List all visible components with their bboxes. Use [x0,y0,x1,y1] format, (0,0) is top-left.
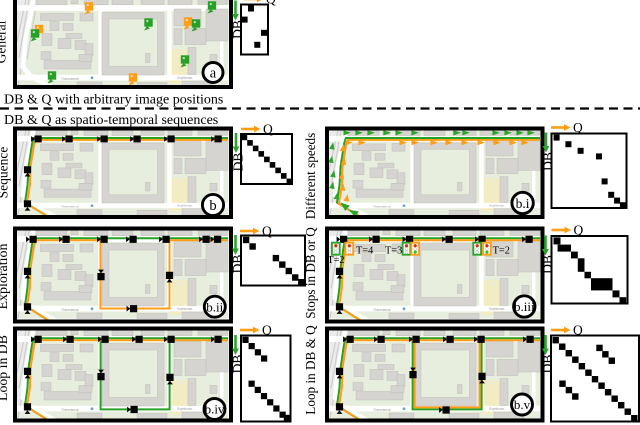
svg-text:DB: DB [540,255,555,274]
svg-text:Sequence: Sequence [0,147,11,199]
svg-text:Q: Q [262,224,272,239]
svg-text:T=2: T=2 [493,246,510,257]
svg-text:Exploration: Exploration [0,243,11,309]
svg-text:Different speeds: Different speeds [303,133,318,220]
svg-text:T=4: T=4 [356,246,373,257]
svg-text:Loop in DB: Loop in DB [0,335,10,401]
svg-text:b.i: b.i [516,196,530,211]
svg-text:General: General [0,20,9,63]
svg-text:DB & Q as spatio-temporal sequ: DB & Q as spatio-temporal sequences [4,113,218,128]
svg-text:DB: DB [230,255,245,274]
svg-text:DB: DB [541,152,556,171]
svg-text:DB: DB [540,355,555,374]
svg-text:Q: Q [573,323,583,338]
svg-text:Q: Q [262,323,272,338]
svg-text:b.iv: b.iv [205,402,225,417]
svg-text:a: a [210,66,217,82]
svg-text:b.ii: b.ii [206,299,223,314]
svg-text:DB: DB [231,153,246,172]
svg-text:DB & Q with arbitrary image po: DB & Q with arbitrary image positions [4,93,223,108]
svg-text:Stops in DB or Q: Stops in DB or Q [303,227,318,319]
svg-text:DB: DB [230,20,245,39]
svg-text:T=2: T=2 [327,255,344,266]
svg-text:T=3: T=3 [385,246,402,257]
svg-text:Loop in DB & Q: Loop in DB & Q [303,325,318,415]
svg-text:Q: Q [263,122,273,137]
svg-text:DB: DB [230,355,245,374]
svg-text:b: b [209,198,216,214]
svg-text:Q: Q [266,0,276,7]
svg-text:Q: Q [574,223,584,238]
svg-text:Q: Q [573,120,583,135]
svg-text:b.v: b.v [514,397,531,412]
svg-text:b.iii: b.iii [514,299,535,314]
